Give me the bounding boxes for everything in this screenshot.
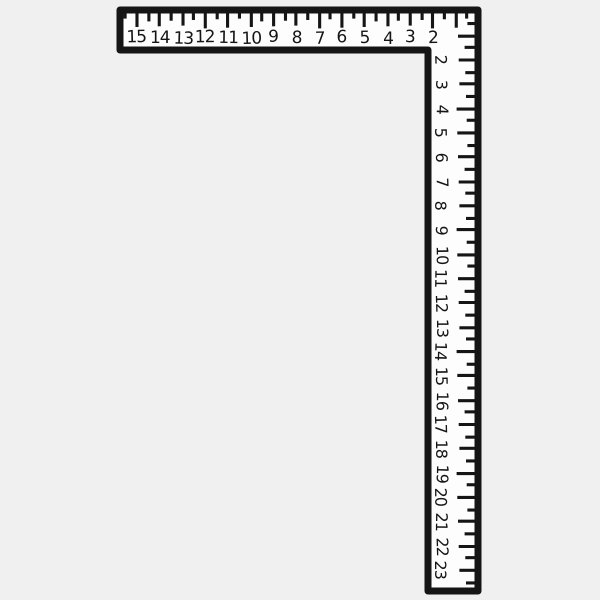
tongue-number: 21 <box>432 512 451 531</box>
blade-number: 12 <box>195 27 215 47</box>
blade-number: 8 <box>291 28 302 48</box>
blade-number: 14 <box>150 28 170 48</box>
tongue-number: 5 <box>431 128 450 137</box>
tongue-number: 18 <box>432 440 451 459</box>
background <box>0 0 600 600</box>
blade-number: 2 <box>428 28 438 48</box>
blade-number: 10 <box>241 28 261 49</box>
tongue-number: 9 <box>432 225 451 236</box>
tongue-number: 13 <box>433 319 452 337</box>
tongue-number: 20 <box>431 487 450 506</box>
blade-number: 6 <box>336 27 346 47</box>
blade-number: 9 <box>268 27 278 47</box>
tongue-number: 7 <box>433 177 452 187</box>
tongue-number: 6 <box>432 152 451 162</box>
tongue-number: 16 <box>433 391 452 410</box>
framing-square-illustration: 1514131211109876543223456789101112131415… <box>0 0 600 600</box>
tongue-number: 4 <box>433 104 452 115</box>
blade-number: 7 <box>315 29 325 49</box>
tongue-number: 23 <box>431 561 450 579</box>
tongue-number: 8 <box>431 201 450 211</box>
blade-number: 5 <box>359 28 370 48</box>
tongue-number: 10 <box>433 246 452 265</box>
tongue-number: 22 <box>433 537 453 556</box>
tongue-number: 11 <box>431 269 450 288</box>
tongue-number: 17 <box>431 414 451 433</box>
blade-number: 3 <box>405 27 416 47</box>
blade-number: 13 <box>173 28 193 49</box>
tongue-number: 12 <box>432 294 452 313</box>
blade-number: 11 <box>218 28 238 48</box>
tongue-number: 14 <box>431 342 451 362</box>
tongue-number: 15 <box>432 367 451 386</box>
blade-number: 15 <box>126 27 146 48</box>
tongue-number: 3 <box>432 80 451 89</box>
blade-number: 4 <box>383 29 393 49</box>
framing-square: 1514131211109876543223456789101112131415… <box>0 0 600 600</box>
tongue-number: 19 <box>432 464 452 484</box>
tongue-number: 2 <box>431 54 450 64</box>
